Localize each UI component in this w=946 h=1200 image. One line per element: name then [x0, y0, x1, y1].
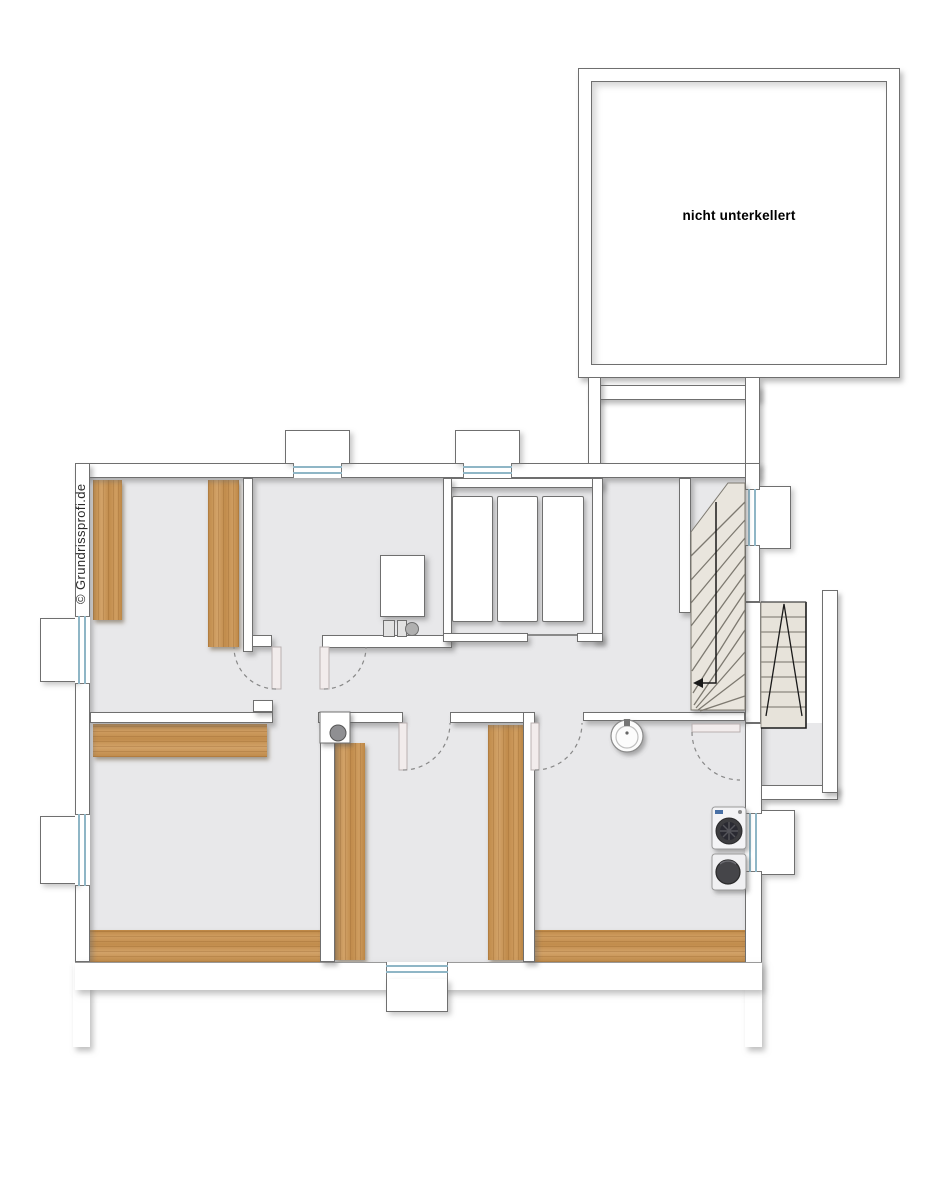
window-glazing — [463, 472, 512, 474]
wood-panel — [488, 725, 523, 960]
wood-panel — [90, 930, 327, 962]
exterior-stair-landing-floor — [761, 723, 822, 785]
window-glazing — [84, 814, 86, 886]
wood-panel — [527, 930, 745, 962]
tank-room-right-wall — [592, 478, 603, 642]
mid-wall-segment-4 — [583, 712, 745, 721]
boiler — [380, 555, 425, 617]
light-well — [762, 810, 795, 875]
oil-tank — [497, 496, 538, 622]
wood-panel — [208, 480, 239, 647]
wood-panel — [93, 480, 122, 620]
window-glazing — [78, 814, 80, 886]
floor-plan-canvas: nicht unterkellert — [0, 0, 946, 1200]
door-jamb — [253, 700, 273, 712]
heating-unit — [383, 620, 395, 637]
light-well — [455, 430, 520, 463]
window-glazing — [293, 466, 342, 468]
not-cellared-label: nicht unterkellert — [591, 73, 887, 357]
tank-room-door-threshold — [528, 634, 577, 636]
tank-room-top-wall — [443, 478, 603, 488]
pump-circle — [405, 622, 419, 636]
exterior-staircase — [761, 602, 806, 728]
room1-right-wall — [243, 478, 253, 652]
connector-wall-horizontal — [588, 385, 760, 400]
oil-tank — [452, 496, 493, 622]
window-glazing — [749, 813, 751, 872]
light-well — [40, 618, 77, 682]
center-room-right-wall — [523, 712, 535, 962]
center-room-left-wall — [320, 712, 335, 962]
window-glazing — [755, 813, 757, 872]
wall-between-stairs — [745, 602, 761, 723]
light-well — [760, 486, 791, 549]
light-well — [40, 816, 77, 884]
exterior-stair-direction-mark — [766, 604, 802, 716]
exterior-stair-outer-wall — [822, 590, 838, 793]
window-glazing — [293, 472, 342, 474]
tank-room-bottom-wall-right — [577, 633, 603, 642]
outer-wall-top — [75, 463, 760, 478]
outer-wall-right-lower — [745, 990, 762, 1047]
oil-tank — [542, 496, 584, 622]
connector-wall-right — [745, 377, 760, 465]
connector-wall-left — [588, 377, 601, 465]
window-glazing — [748, 489, 750, 546]
watermark: © Grundrissprofi.de — [73, 484, 88, 605]
window-glazing — [386, 971, 448, 973]
light-well — [386, 979, 448, 1012]
window-glazing — [463, 466, 512, 468]
window-glazing — [84, 616, 86, 684]
mid-wall-segment-1 — [90, 712, 273, 723]
window-glazing — [386, 965, 448, 967]
wood-panel — [93, 724, 267, 757]
window — [745, 813, 762, 872]
stair-room-left-wall — [679, 478, 691, 613]
tank-room-left-wall — [443, 478, 452, 642]
window-glazing — [78, 616, 80, 684]
door-jamb — [252, 635, 272, 647]
tank-room-bottom-wall-left — [443, 633, 528, 642]
window-glazing — [754, 489, 756, 546]
light-well — [285, 430, 350, 463]
wood-panel — [335, 743, 365, 960]
